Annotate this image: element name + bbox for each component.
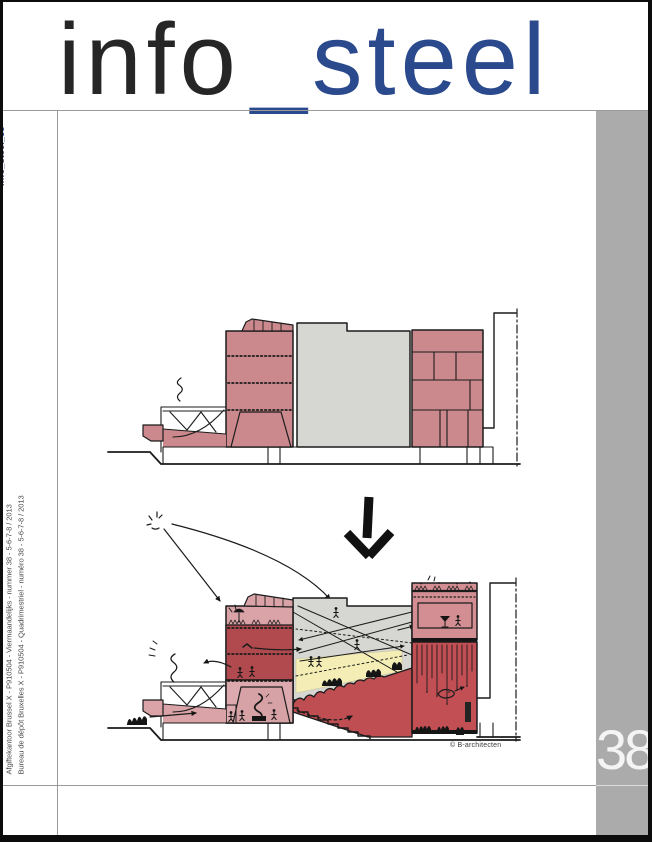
figure-credit: © B-architecten: [450, 742, 501, 749]
top-section-drawing: [95, 285, 575, 490]
smoke-icon: [171, 654, 177, 682]
dark-red-floors: [226, 625, 293, 680]
footer-divider-strip: [596, 785, 648, 786]
canopy: [242, 319, 293, 331]
smoke-icon: [177, 378, 182, 401]
page-number-badge: 38: [596, 722, 648, 778]
footer-divider: [3, 785, 596, 786]
header-divider: [0, 110, 648, 111]
annotated-section-drawing: [95, 495, 575, 775]
magazine-cover: info_steel info_steel_38 Afgiftekantoor …: [0, 0, 652, 842]
postal-line-dutch: Afgiftekantoor Brussel X - P910504 - Vie…: [3, 483, 15, 775]
gray-volume: [297, 323, 410, 447]
page-border: [648, 0, 652, 842]
ground-line: [108, 452, 520, 464]
masthead-title: info_steel: [58, 10, 550, 111]
postal-imprint: Afgiftekantoor Brussel X - P910504 - Vie…: [3, 483, 27, 775]
tall-tower: [477, 583, 515, 698]
spine-divider: [57, 111, 58, 835]
crowd-icon: [127, 716, 147, 725]
tall-tower: [483, 313, 516, 428]
masthead-word-info: info: [58, 4, 241, 116]
page-border: [0, 0, 3, 842]
sun-icon: [147, 512, 162, 529]
masthead-word-steel: _steel: [251, 4, 551, 116]
page-border: [0, 835, 652, 842]
canopy: [244, 594, 293, 607]
page-border: [0, 0, 652, 2]
postal-line-french: Bureau de dépôt Bruxelles X - P910504 - …: [15, 483, 27, 775]
